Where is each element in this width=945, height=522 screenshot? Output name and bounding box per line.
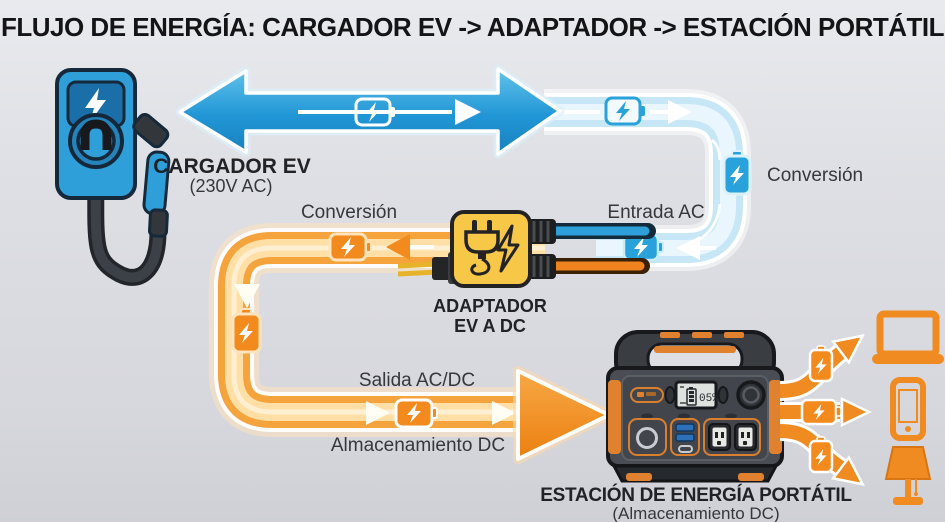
smartphone-icon bbox=[893, 380, 923, 438]
charger-sublabel: (230V AC) bbox=[189, 177, 272, 197]
dc-storage-label: Almacenamiento DC bbox=[331, 436, 505, 457]
battery-charging-icon bbox=[724, 151, 750, 194]
ac-conversion-label: Conversión bbox=[767, 166, 863, 187]
dc-conversion-label: Conversión bbox=[301, 203, 397, 224]
charger-label: CARGADOR EV bbox=[153, 155, 311, 178]
laptop-icon bbox=[872, 314, 944, 364]
battery-level-readout: 05% bbox=[699, 393, 719, 405]
battery-charging-icon bbox=[810, 346, 832, 381]
dc-output-label: Salida AC/DC bbox=[359, 371, 475, 392]
ac-outlet bbox=[709, 424, 730, 450]
usb-port bbox=[676, 434, 694, 441]
lamp-icon bbox=[886, 447, 930, 505]
ac-input-label: Entrada AC bbox=[607, 203, 704, 224]
battery-charging-icon bbox=[810, 437, 832, 472]
ev-dc-adapter-icon bbox=[452, 212, 530, 286]
usb-port bbox=[676, 424, 694, 431]
power-station-icon: 05% bbox=[608, 332, 782, 481]
ac-outlet bbox=[735, 424, 756, 450]
battery-charging-icon bbox=[802, 400, 841, 424]
lcd-display: 05% bbox=[676, 382, 719, 408]
station-sublabel: (Almacenamiento DC) bbox=[612, 505, 779, 522]
dc-output-arrow bbox=[518, 371, 609, 459]
battery-charging-icon bbox=[396, 400, 437, 427]
adapter-sublabel: EV A DC bbox=[454, 317, 526, 337]
battery-charging-icon bbox=[606, 98, 645, 124]
power-knob bbox=[738, 382, 764, 408]
battery-charging-icon bbox=[233, 309, 260, 352]
energy-flow-diagram: FLUJO DE ENERGÍA: CARGADOR EV -> ADAPTAD… bbox=[0, 0, 945, 522]
adapter-label: ADAPTADOR bbox=[433, 297, 547, 317]
battery-charging-icon bbox=[330, 234, 371, 260]
